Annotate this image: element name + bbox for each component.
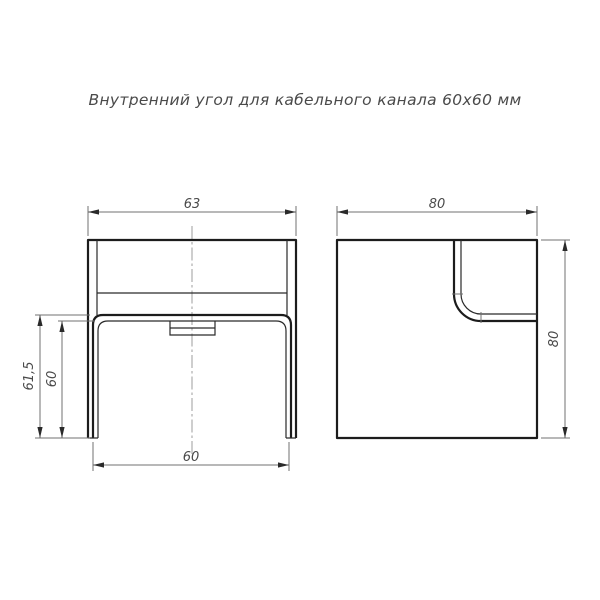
dim-label-outer-height: 61,5 [22,362,37,391]
side-view: 80 80 [337,197,570,438]
side-outline [337,240,537,438]
dim-side-height: 80 [541,240,570,438]
dim-label-top-width: 63 [184,197,201,212]
front-view: 63 61,5 60 60 [22,197,296,471]
dim-label-inner-height: 60 [45,371,60,388]
dim-side-width: 80 [337,197,537,236]
drawing-title: Внутренний угол для кабельного канала 60… [89,91,522,109]
technical-drawing: Внутренний угол для кабельного канала 60… [0,0,600,600]
dim-label-side-height: 80 [547,331,562,348]
dim-label-bottom-width: 60 [183,450,200,465]
drawing-sheet: Внутренний угол для кабельного канала 60… [0,0,600,600]
side-wall-outer [454,240,537,321]
dim-label-side-width: 80 [429,197,446,212]
side-wall-inner [461,240,537,314]
dim-front-bottom-width: 60 [93,442,289,471]
